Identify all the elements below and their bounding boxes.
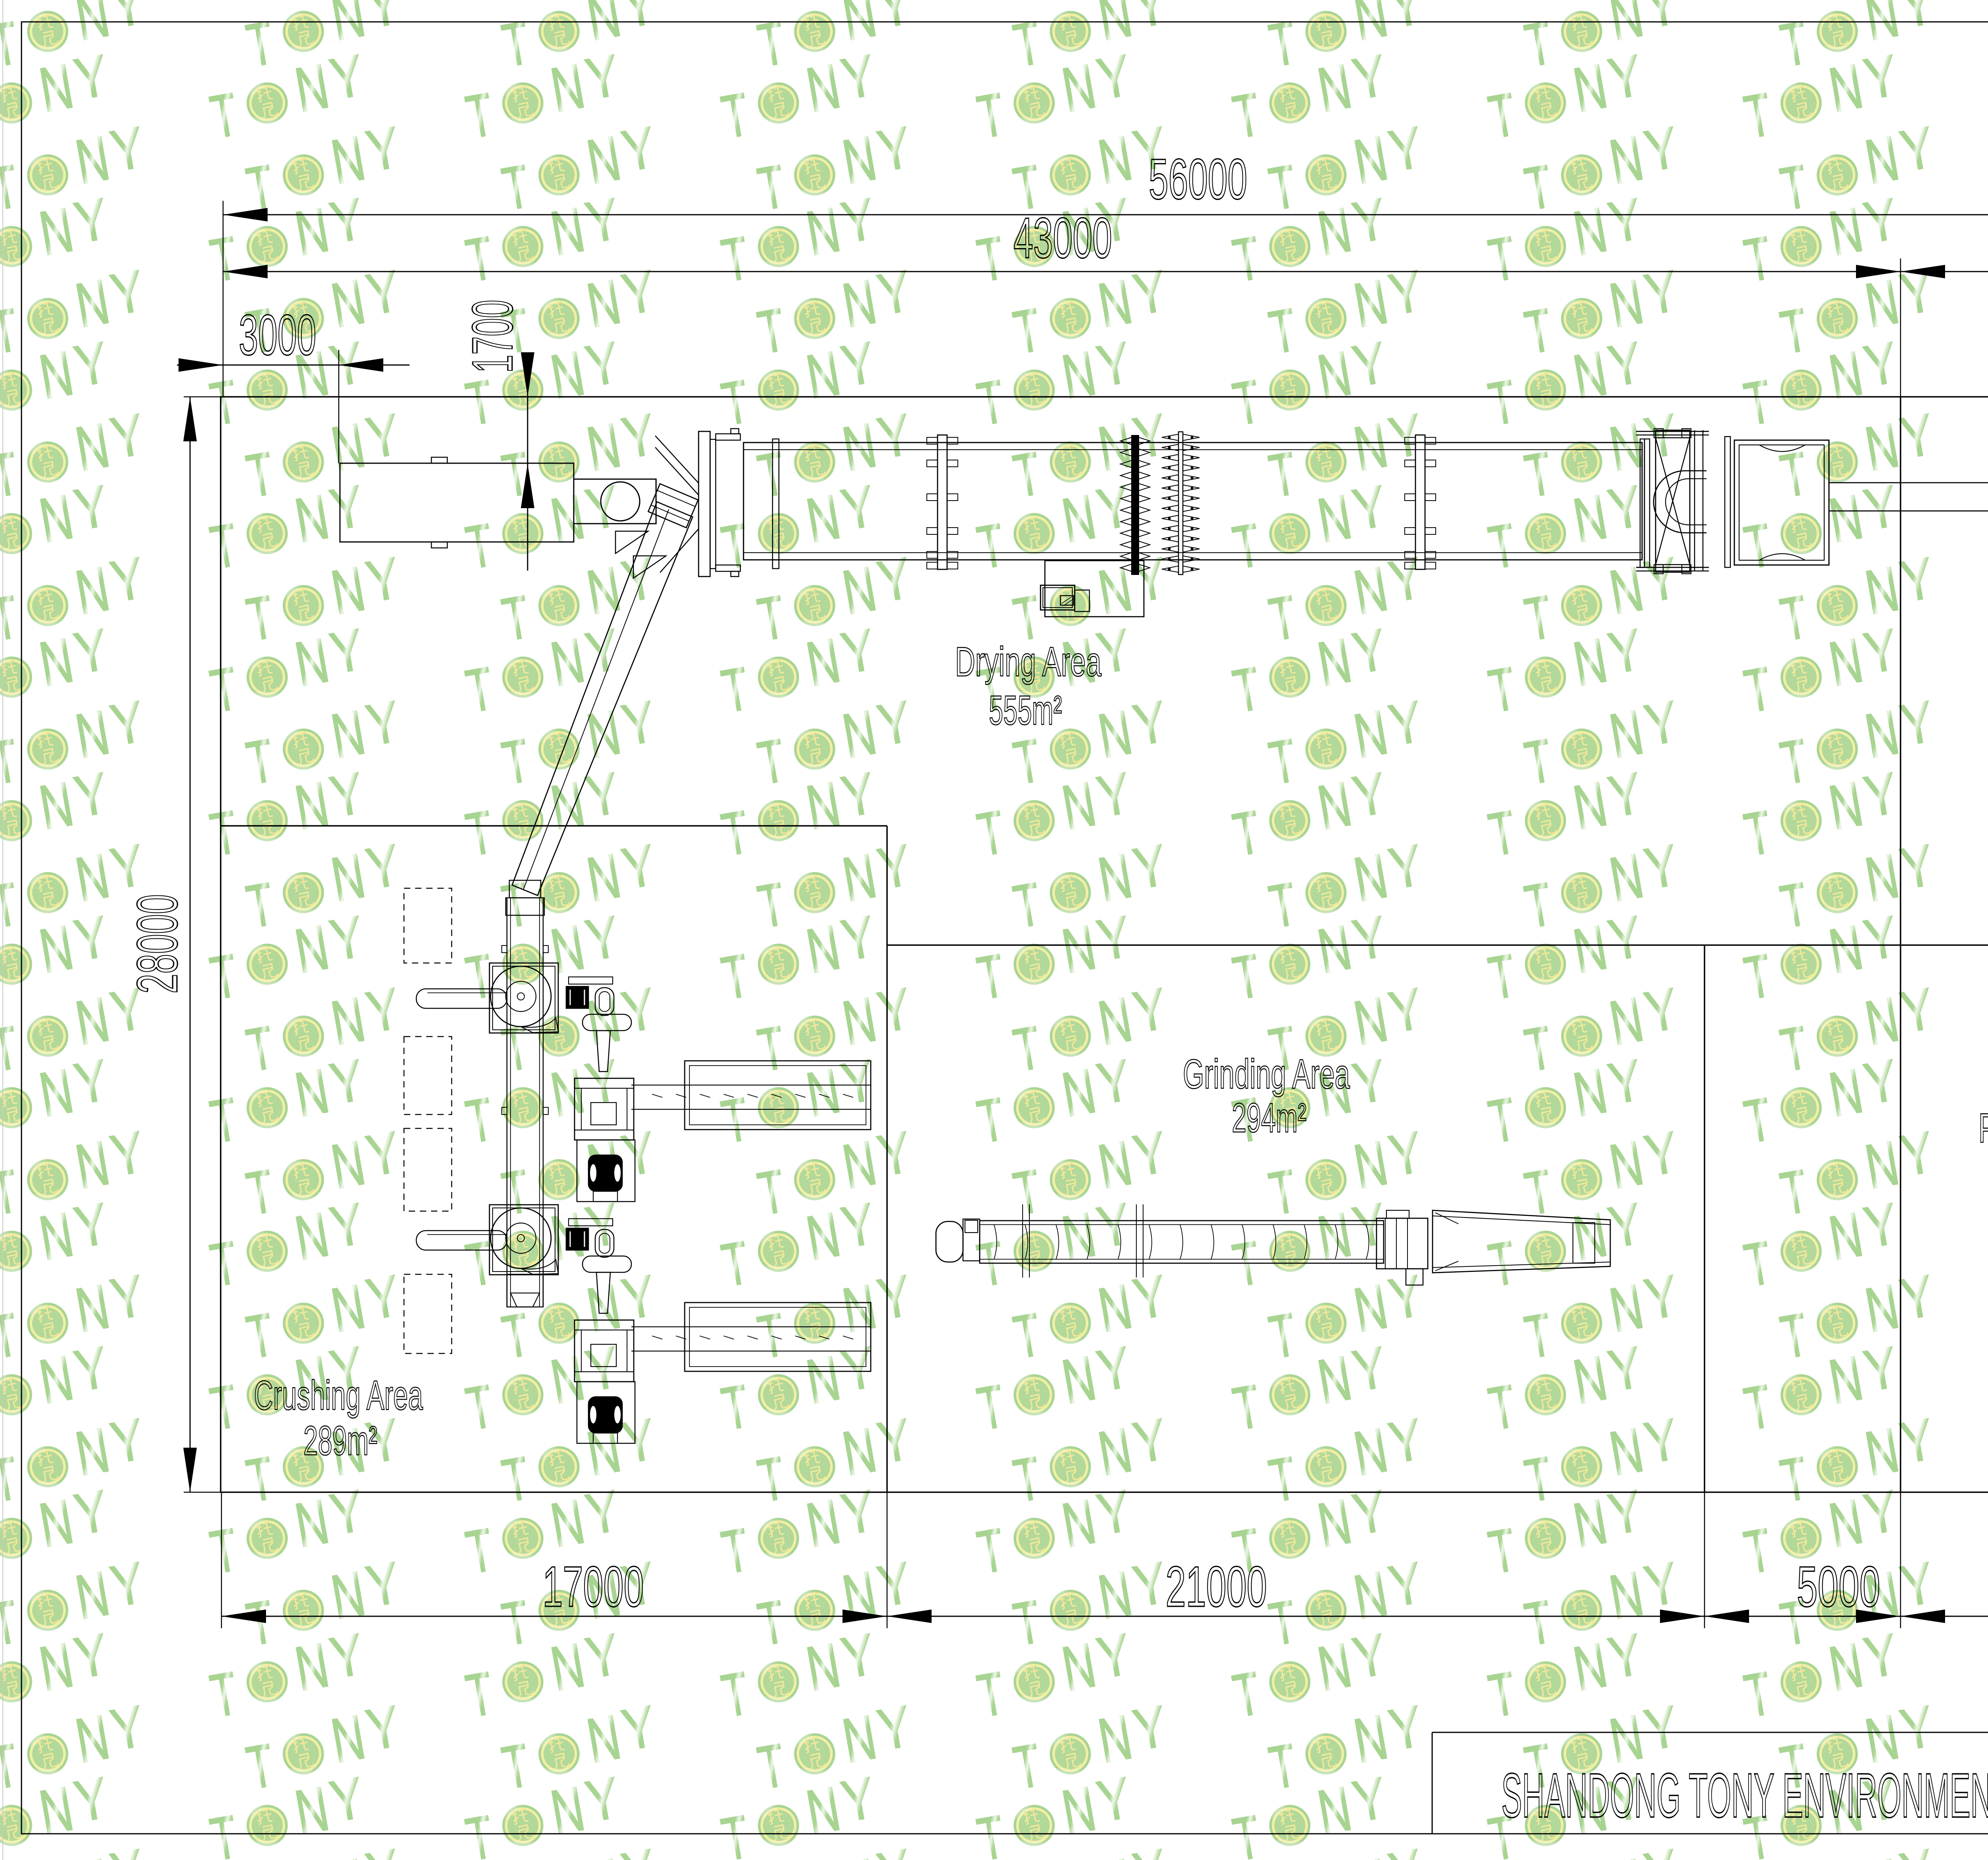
svg-text:21000: 21000	[1166, 1555, 1267, 1619]
svg-text:3000: 3000	[239, 303, 316, 367]
svg-text:Packing Area: Packing Area	[1978, 1105, 1988, 1151]
svg-text:289m²: 289m²	[303, 1418, 377, 1464]
svg-text:555m²: 555m²	[989, 687, 1062, 734]
svg-text:43000: 43000	[1013, 206, 1112, 270]
svg-text:28000: 28000	[125, 894, 189, 994]
svg-text:56000: 56000	[1149, 147, 1247, 211]
svg-text:5000: 5000	[1797, 1555, 1880, 1619]
svg-text:Drying Area: Drying Area	[955, 639, 1101, 685]
svg-text:294m²: 294m²	[1232, 1095, 1307, 1141]
svg-text:1700: 1700	[460, 300, 524, 373]
svg-text:Grinding Area: Grinding Area	[1183, 1051, 1350, 1097]
svg-text:17000: 17000	[543, 1555, 644, 1619]
svg-text:SHANDONG TONY ENVIRONMENTAL PR: SHANDONG TONY ENVIRONMENTAL PROTECTION S…	[1501, 1761, 1988, 1831]
svg-text:Crushing Area: Crushing Area	[254, 1373, 423, 1419]
